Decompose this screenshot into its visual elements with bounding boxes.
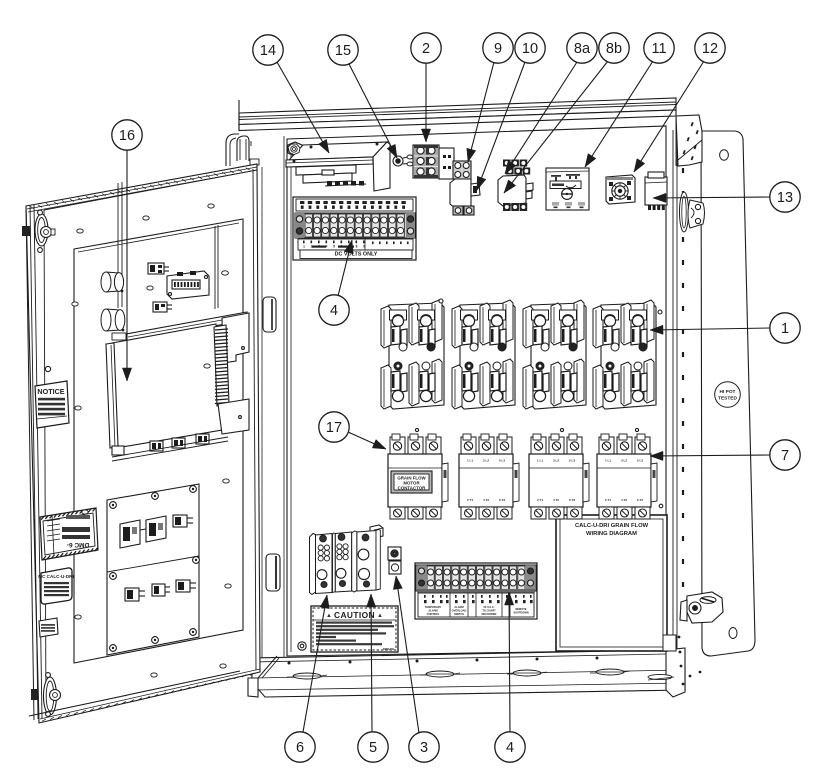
svg-text:12: 12 [702,41,718,57]
svg-text:CONTROL: CONTROL [427,612,440,616]
svg-text:11: 11 [651,41,666,57]
svg-text:13: 13 [777,190,793,206]
svg-text:ALARM: ALARM [454,605,463,609]
svg-text:4: 4 [330,303,338,319]
svg-text:REMOTE: REMOTE [515,607,526,611]
svg-text:8: 8 [356,245,358,249]
svg-text:5: 5 [369,740,377,756]
svg-text:1: 1 [781,321,789,337]
svg-text:6: 6 [296,740,304,756]
svg-text:CONTACTOR: CONTACTOR [398,486,426,491]
svg-text:1 L1: 1 L1 [467,459,473,463]
svg-text:CAUTION: CAUTION [334,610,375,620]
svg-text:4 T2: 4 T2 [553,498,559,502]
svg-text:MC CALC-U-DRI: MC CALC-U-DRI [38,574,73,579]
svg-text:5: 5 [333,245,335,249]
svg-text:HI POT: HI POT [720,389,736,395]
svg-text:DRM-052: DRM-052 [383,647,395,651]
svg-text:DC VOLTS ONLY: DC VOLTS ONLY [335,252,378,258]
svg-text:9: 9 [363,245,365,249]
svg-text:8a: 8a [574,41,591,57]
svg-text:1: 1 [303,245,305,249]
svg-text:10: 10 [522,41,538,57]
svg-text:TEMPORARY: TEMPORARY [425,605,442,609]
svg-text:3 L2: 3 L2 [553,459,559,463]
svg-text:1 L1: 1 L1 [537,459,543,463]
svg-text:4 T2: 4 T2 [483,498,489,502]
svg-text:16: 16 [119,128,135,144]
svg-text:2: 2 [422,41,430,57]
svg-text:SHUTDOWN: SHUTDOWN [513,611,528,615]
svg-text:9: 9 [494,41,502,57]
svg-text:7: 7 [781,448,789,464]
svg-text:17: 17 [326,420,342,436]
svg-text:6 T3: 6 T3 [637,498,643,502]
svg-text:4: 4 [506,740,514,756]
svg-text:ALARM: ALARM [428,609,437,613]
svg-text:3: 3 [420,740,428,756]
svg-text:2 T1: 2 T1 [537,498,543,502]
svg-text:DMC 6-: DMC 6- [67,541,89,548]
svg-text:3 L2: 3 L2 [483,459,489,463]
svg-text:OVERLOAD: OVERLOAD [452,609,467,613]
svg-text:5 L3: 5 L3 [499,459,505,463]
svg-text:WIRING DIAGRAM: WIRING DIAGRAM [586,531,637,537]
svg-text:5 L3: 5 L3 [569,459,575,463]
svg-text:5 L3: 5 L3 [637,459,643,463]
svg-text:NOTICE: NOTICE [37,387,64,396]
svg-text:RECORDER: RECORDER [482,612,497,616]
svg-text:SWITCH: SWITCH [454,612,464,616]
svg-text:6 T3: 6 T3 [499,498,505,502]
svg-text:CALC-U-DRI GRAIN FLOW: CALC-U-DRI GRAIN FLOW [575,523,649,529]
svg-text:8b: 8b [606,41,622,57]
svg-text:50 V.A.C.: 50 V.A.C. [483,605,494,609]
svg-text:6 T3: 6 T3 [569,498,575,502]
svg-text:15: 15 [335,43,351,59]
svg-text:3 L2: 3 L2 [621,459,627,463]
svg-text:TO CHART: TO CHART [482,609,496,613]
svg-text:4 T2: 4 T2 [621,498,627,502]
svg-text:2 T1: 2 T1 [467,498,473,502]
svg-text:▲: ▲ [377,613,383,619]
svg-text:14: 14 [260,43,276,59]
svg-text:▲: ▲ [326,613,332,619]
svg-text:2 T1: 2 T1 [605,498,611,502]
svg-text:TESTED: TESTED [718,396,737,402]
svg-text:1 L1: 1 L1 [605,459,611,463]
